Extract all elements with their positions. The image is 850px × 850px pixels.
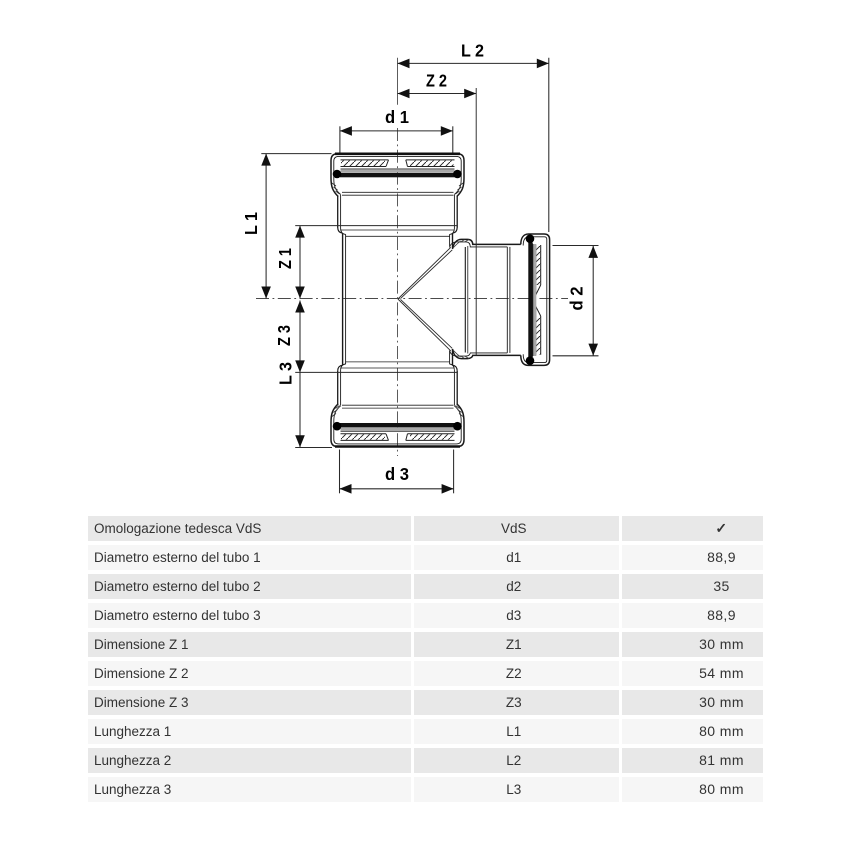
svg-text:Z 1: Z 1 — [275, 248, 295, 269]
svg-text:L 3: L 3 — [276, 362, 296, 385]
svg-text:d 3: d 3 — [385, 464, 409, 484]
svg-text:d 1: d 1 — [385, 107, 409, 127]
svg-text:L 2: L 2 — [461, 41, 484, 61]
svg-text:Z 2: Z 2 — [426, 71, 447, 91]
svg-text:L 1: L 1 — [241, 212, 261, 235]
svg-text:d 2: d 2 — [567, 286, 587, 310]
svg-text:Z 3: Z 3 — [274, 325, 294, 346]
